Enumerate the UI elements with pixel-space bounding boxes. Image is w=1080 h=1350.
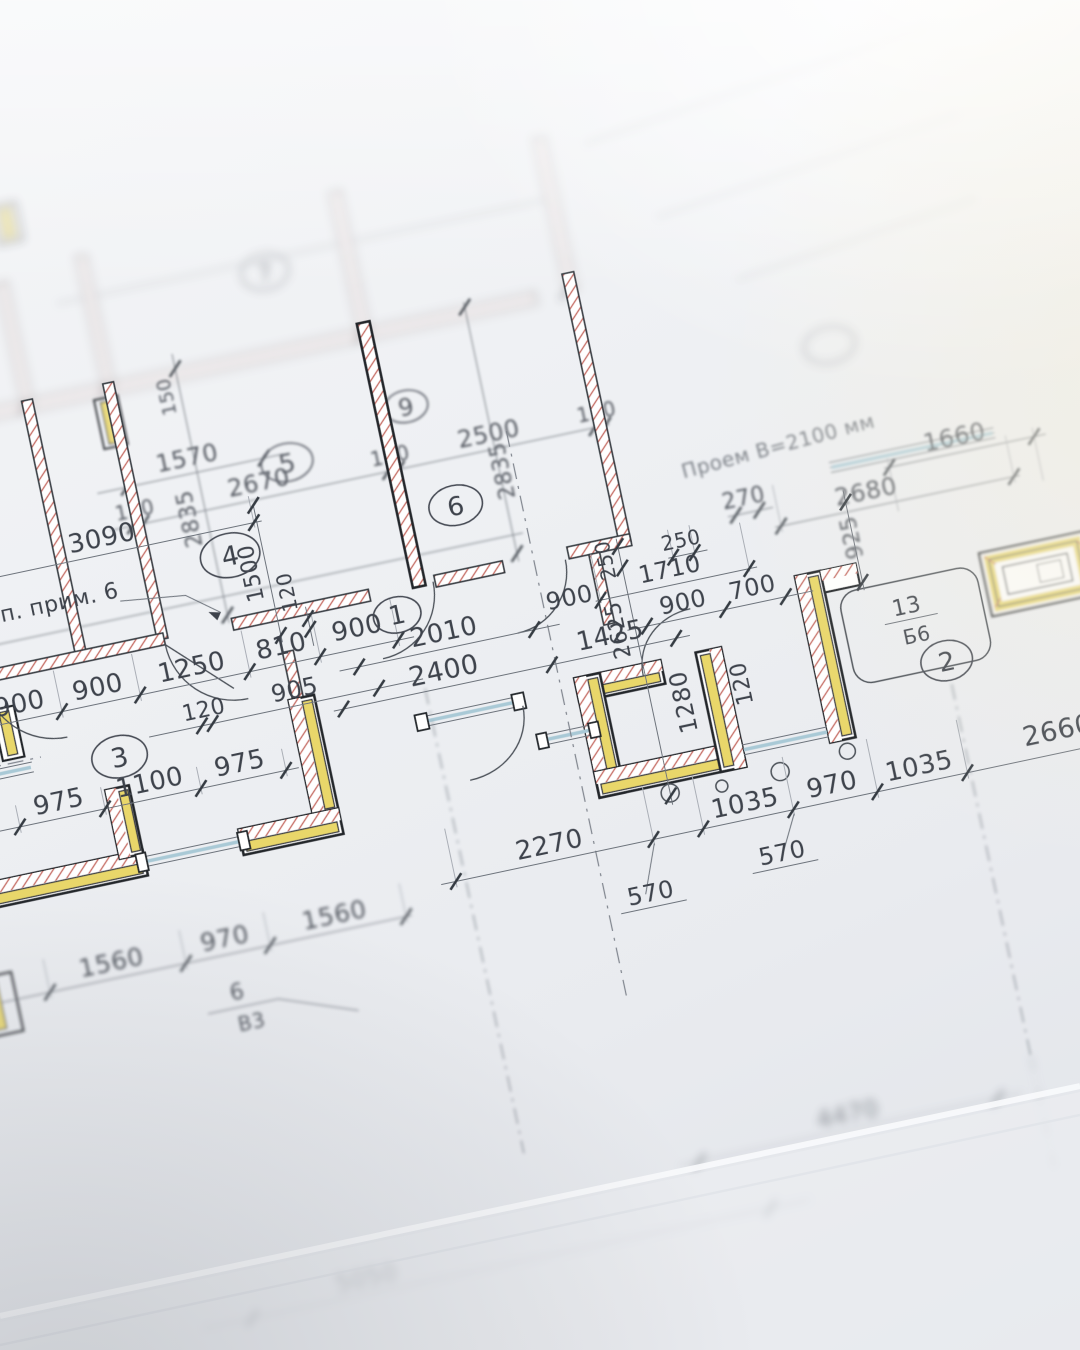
room-badge-7: 7 <box>255 257 276 288</box>
opening-note: Проем В=2100 мм <box>679 409 878 484</box>
dim-label-1660: 1660 <box>921 417 989 458</box>
prim-note-leader <box>120 581 221 632</box>
blueprint-photo: 7 1570 120 2670 120 2500 120 150 2835 28… <box>0 0 1080 1350</box>
dim-label-2270: 2270 <box>513 823 586 867</box>
dim-label-1500: 1500 <box>234 542 271 604</box>
dim-label-1710: 1710 <box>636 549 704 590</box>
room-badge-9: 9 <box>396 392 417 423</box>
plan-main: 3090 1500 120 п. прим. 6 900 900 1250 81… <box>0 182 1080 1130</box>
dim-label-970-a: 970 <box>804 765 860 805</box>
room-badge-2: 2 <box>936 646 959 679</box>
dim-label-700: 700 <box>726 569 778 606</box>
dim-label-2660: 2660 <box>1020 708 1080 753</box>
dim-label-900-a: 900 <box>0 684 48 724</box>
dim-label-1250: 1250 <box>155 646 228 690</box>
dim-label-2835-a: 2835 <box>172 488 209 550</box>
dim-label-2835-b: 2835 <box>485 440 522 502</box>
room-badge-1: 1 <box>386 599 409 632</box>
dim-label-970-b: 970 <box>198 919 252 958</box>
prim-note-arrow <box>208 610 222 622</box>
dim-label-1280: 1280 <box>663 668 704 736</box>
dim-label-900-d: 900 <box>657 584 709 621</box>
dim-label-900-b: 900 <box>70 668 126 708</box>
door-mark-bottom: Б6 <box>901 621 933 650</box>
shaft-block <box>979 531 1080 616</box>
dim-label-120-v: 120 <box>271 570 303 614</box>
dim-label-975-a: 975 <box>31 782 87 822</box>
dim-label-570-a: 570 <box>625 875 677 912</box>
dim-label-1570: 1570 <box>153 438 221 479</box>
dim-label-1035-a: 1035 <box>709 782 782 826</box>
dim-label-150: 150 <box>152 376 181 418</box>
window-mark-bottom: В3 <box>236 1007 268 1036</box>
dim-label-900-e: 900 <box>543 579 595 616</box>
dim-label-1560-b: 1560 <box>299 894 369 936</box>
room-badge-3: 3 <box>108 741 132 775</box>
dim-label-900-c: 900 <box>329 608 385 648</box>
dim-label-1560-a: 1560 <box>76 941 146 983</box>
dim-label-2010: 2010 <box>407 611 480 655</box>
paper-edges <box>0 1086 1080 1350</box>
window-mark-6-v3: 6 В3 <box>202 957 358 1043</box>
room-badge-6: 6 <box>445 491 468 524</box>
plan-mid-blur-zone: 1570 120 2670 120 2500 120 150 2835 2835… <box>0 176 1080 824</box>
window-mark-top: 6 <box>228 979 247 1006</box>
dim-label-3090: 3090 <box>65 517 138 561</box>
floor-plan-drawing: 7 1570 120 2670 120 2500 120 150 2835 28… <box>0 0 1080 1350</box>
dim-label-2400: 2400 <box>406 648 482 693</box>
dim-label-1035-b: 1035 <box>883 745 956 789</box>
dim-label-570-b: 570 <box>756 834 808 871</box>
room-badge-4: 4 <box>219 540 243 574</box>
dim-label-975-b: 975 <box>212 744 268 784</box>
